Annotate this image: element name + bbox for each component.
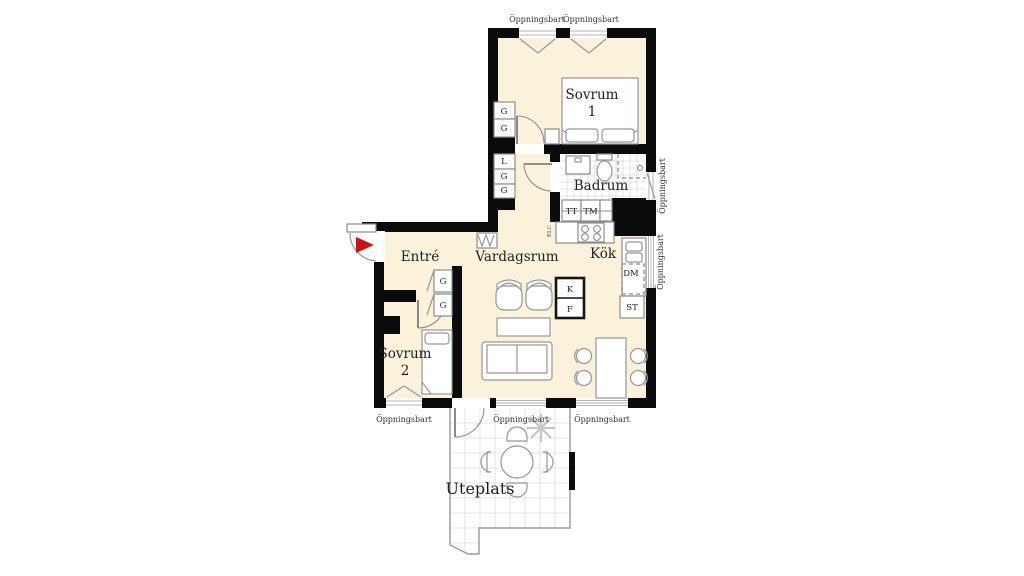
wardrobe-label: G	[501, 186, 508, 196]
coat-rack	[477, 233, 497, 248]
linen-cabinet-label: L	[501, 157, 507, 167]
room-label-vardagsrum: Vardagsrum	[474, 249, 558, 265]
nightstand	[545, 129, 559, 144]
wardrobe-label: G	[501, 172, 508, 182]
pillow	[602, 129, 634, 142]
wardrobe-label: G	[440, 277, 447, 287]
toilet-tank	[597, 154, 612, 160]
window-label: Öppningsbart	[656, 233, 665, 290]
room-number-sovrum2: 2	[401, 363, 410, 379]
room-label-entre: Entré	[401, 249, 439, 265]
room-label-badrum: Badrum	[574, 178, 629, 194]
room-label-sovrum2: Sovrum	[379, 346, 432, 362]
window-label: Öppningsbart	[509, 15, 566, 24]
entrance-arrow-icon	[356, 237, 374, 253]
fridge-label: K	[567, 285, 574, 295]
wardrobe-label: G	[440, 301, 447, 311]
window-matplats	[576, 398, 628, 408]
patio: Uteplats	[446, 408, 575, 554]
coffee-table	[497, 318, 550, 336]
pillow	[566, 129, 598, 142]
tall-cabinet-label: ST	[626, 303, 638, 313]
window-label: Öppningsbart	[658, 157, 667, 214]
freezer-label: F	[567, 305, 573, 315]
floorplan-page: Uteplats	[0, 0, 1024, 576]
room-label-kok: Kök	[590, 246, 617, 262]
floorplan-drawing: Uteplats	[0, 0, 1024, 576]
room-label-sovrum1: Sovrum	[566, 87, 619, 103]
wardrobe-label: G	[501, 124, 508, 134]
pillow	[425, 333, 449, 344]
electrical-label: ELC	[547, 225, 553, 237]
wardrobe-label: G	[501, 107, 508, 117]
room-label-uteplats: Uteplats	[446, 479, 515, 498]
window-label: Öppningsbart	[563, 15, 620, 24]
patio-table	[501, 446, 533, 478]
dryer-label: TT	[566, 207, 578, 217]
dining-table	[596, 338, 626, 398]
window-badrum	[646, 172, 656, 200]
window-label: Öppningsbart	[574, 415, 631, 424]
bathroom-sink	[566, 156, 590, 174]
room-number-sovrum1: 1	[588, 104, 597, 120]
window-vardagsrum	[496, 398, 546, 408]
dishwasher-label: DM	[623, 269, 639, 279]
window-label: Öppningsbart	[376, 415, 433, 424]
sofa	[482, 342, 552, 380]
patio-chair-top	[507, 427, 527, 441]
window-label: Öppningsbart	[493, 415, 550, 424]
patio-wall-segment	[569, 452, 575, 490]
window-kok	[646, 236, 656, 288]
washer-label: TM	[583, 207, 598, 217]
